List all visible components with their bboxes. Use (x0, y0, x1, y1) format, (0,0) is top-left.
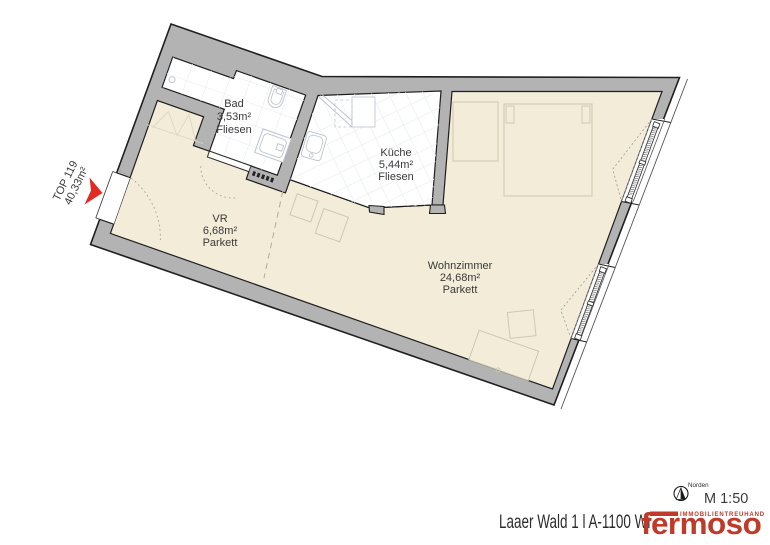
svg-text:24,68m²: 24,68m² (440, 272, 481, 284)
svg-text:Bad: Bad (224, 98, 244, 110)
svg-text:Parkett: Parkett (443, 284, 478, 296)
svg-text:Fliesen: Fliesen (216, 124, 251, 136)
svg-text:5,44m²: 5,44m² (379, 159, 414, 171)
svg-text:6,68m²: 6,68m² (203, 225, 238, 237)
svg-text:Wohnzimmer: Wohnzimmer (428, 260, 493, 272)
svg-text:IMMOBILIENTREUHAND: IMMOBILIENTREUHAND (680, 512, 765, 518)
svg-text:M 1:50: M 1:50 (704, 491, 748, 507)
svg-text:3,53m²: 3,53m² (217, 111, 252, 123)
svg-text:Küche: Küche (380, 147, 411, 159)
svg-text:Parkett: Parkett (203, 237, 238, 249)
svg-text:Fliesen: Fliesen (378, 171, 413, 183)
svg-text:Norden: Norden (688, 482, 709, 489)
svg-text:VR: VR (212, 213, 227, 225)
